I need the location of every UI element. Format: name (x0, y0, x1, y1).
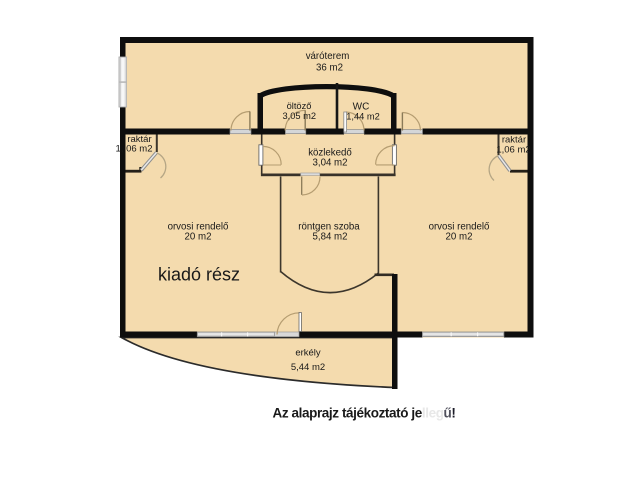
svg-text:Az alaprajz tájékoztató jelleg: Az alaprajz tájékoztató jellegű! (272, 406, 455, 421)
svg-text:erkély: erkély (295, 348, 321, 359)
svg-text:1,06 m2: 1,06 m2 (496, 145, 530, 156)
svg-text:1,44 m2: 1,44 m2 (346, 112, 380, 122)
svg-text:3,05 m2: 3,05 m2 (283, 111, 317, 121)
svg-text:20 m2: 20 m2 (185, 232, 212, 243)
svg-text:öltöző: öltöző (287, 101, 312, 111)
svg-text:kiadó rész: kiadó rész (158, 265, 240, 285)
svg-text:3,04 m2: 3,04 m2 (312, 158, 347, 169)
svg-text:5,44 m2: 5,44 m2 (291, 362, 325, 373)
svg-text:váróterem: váróterem (306, 51, 350, 62)
svg-text:36 m2: 36 m2 (316, 63, 343, 74)
svg-text:1, 06 m2: 1, 06 m2 (116, 144, 153, 155)
svg-text:5,84 m2: 5,84 m2 (312, 232, 347, 243)
svg-text:20 m2: 20 m2 (446, 232, 473, 243)
